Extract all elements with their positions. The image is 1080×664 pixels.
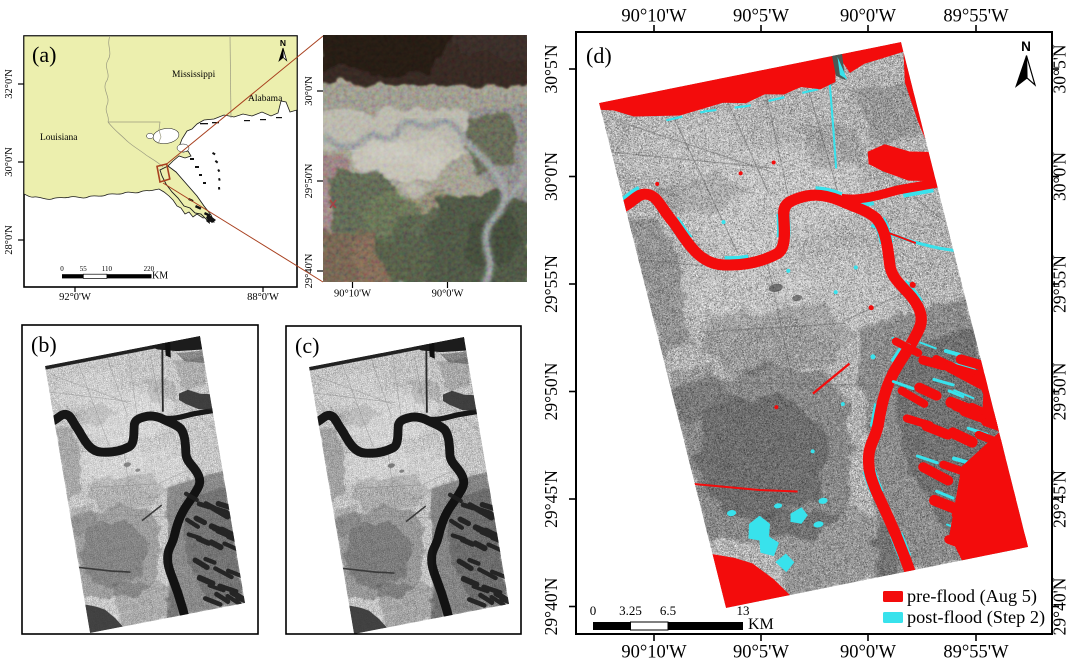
- svg-text:89°55'W: 89°55'W: [943, 7, 1009, 27]
- svg-text:90°0'W: 90°0'W: [840, 643, 896, 663]
- svg-text:30°5'N: 30°5'N: [541, 44, 561, 93]
- svg-text:(a): (a): [32, 42, 56, 67]
- svg-text:KM: KM: [748, 616, 774, 633]
- svg-text:(c): (c): [295, 333, 319, 358]
- svg-text:55: 55: [80, 265, 88, 273]
- svg-text:Louisiana: Louisiana: [40, 133, 78, 143]
- svg-text:6.5: 6.5: [660, 603, 676, 618]
- svg-text:30°0'N: 30°0'N: [304, 76, 315, 106]
- svg-text:(d): (d): [586, 43, 612, 68]
- svg-text:32°0'N: 32°0'N: [4, 69, 15, 99]
- svg-text:29°55'N: 29°55'N: [1050, 255, 1070, 313]
- svg-text:30°0'N: 30°0'N: [1050, 152, 1070, 201]
- svg-text:pre-flood (Aug 5): pre-flood (Aug 5): [907, 586, 1037, 607]
- svg-text:29°45'N: 29°45'N: [1050, 470, 1070, 528]
- svg-text:post-flood (Step 2): post-flood (Step 2): [907, 607, 1045, 628]
- svg-text:28°0'N: 28°0'N: [4, 225, 15, 255]
- svg-text:N: N: [280, 38, 286, 48]
- svg-text:(b): (b): [31, 332, 57, 357]
- svg-text:90°10'W: 90°10'W: [621, 7, 687, 27]
- svg-text:29°45'N: 29°45'N: [541, 470, 561, 528]
- svg-text:92°0'W: 92°0'W: [59, 292, 91, 303]
- svg-text:29°40'N: 29°40'N: [541, 577, 561, 635]
- svg-text:KM: KM: [152, 271, 168, 282]
- svg-text:90°10'W: 90°10'W: [334, 289, 371, 300]
- svg-text:29°50'N: 29°50'N: [541, 362, 561, 420]
- svg-text:Alabama: Alabama: [248, 94, 283, 104]
- svg-text:0: 0: [60, 265, 64, 273]
- svg-text:29°40'N: 29°40'N: [1050, 577, 1070, 635]
- svg-text:90°10'W: 90°10'W: [621, 643, 687, 663]
- svg-text:N: N: [1021, 39, 1031, 54]
- svg-text:0: 0: [590, 603, 597, 618]
- svg-text:30°0'N: 30°0'N: [541, 152, 561, 201]
- svg-text:29°50'N: 29°50'N: [304, 163, 315, 198]
- svg-text:90°0'W: 90°0'W: [432, 289, 464, 300]
- svg-text:110: 110: [102, 265, 113, 273]
- svg-text:Mississippi: Mississippi: [172, 70, 216, 80]
- svg-text:29°40'N: 29°40'N: [304, 253, 315, 288]
- svg-text:90°0'W: 90°0'W: [840, 7, 896, 27]
- svg-text:29°50'N: 29°50'N: [1050, 362, 1070, 420]
- svg-text:90°5'W: 90°5'W: [733, 7, 789, 27]
- svg-text:90°5'W: 90°5'W: [733, 643, 789, 663]
- svg-text:3.25: 3.25: [619, 603, 642, 618]
- svg-text:89°55'W: 89°55'W: [943, 643, 1009, 663]
- svg-text:88°0'W: 88°0'W: [247, 292, 279, 303]
- svg-text:29°55'N: 29°55'N: [541, 255, 561, 313]
- svg-text:30°0'N: 30°0'N: [4, 147, 15, 177]
- svg-text:30°5'N: 30°5'N: [1050, 44, 1070, 93]
